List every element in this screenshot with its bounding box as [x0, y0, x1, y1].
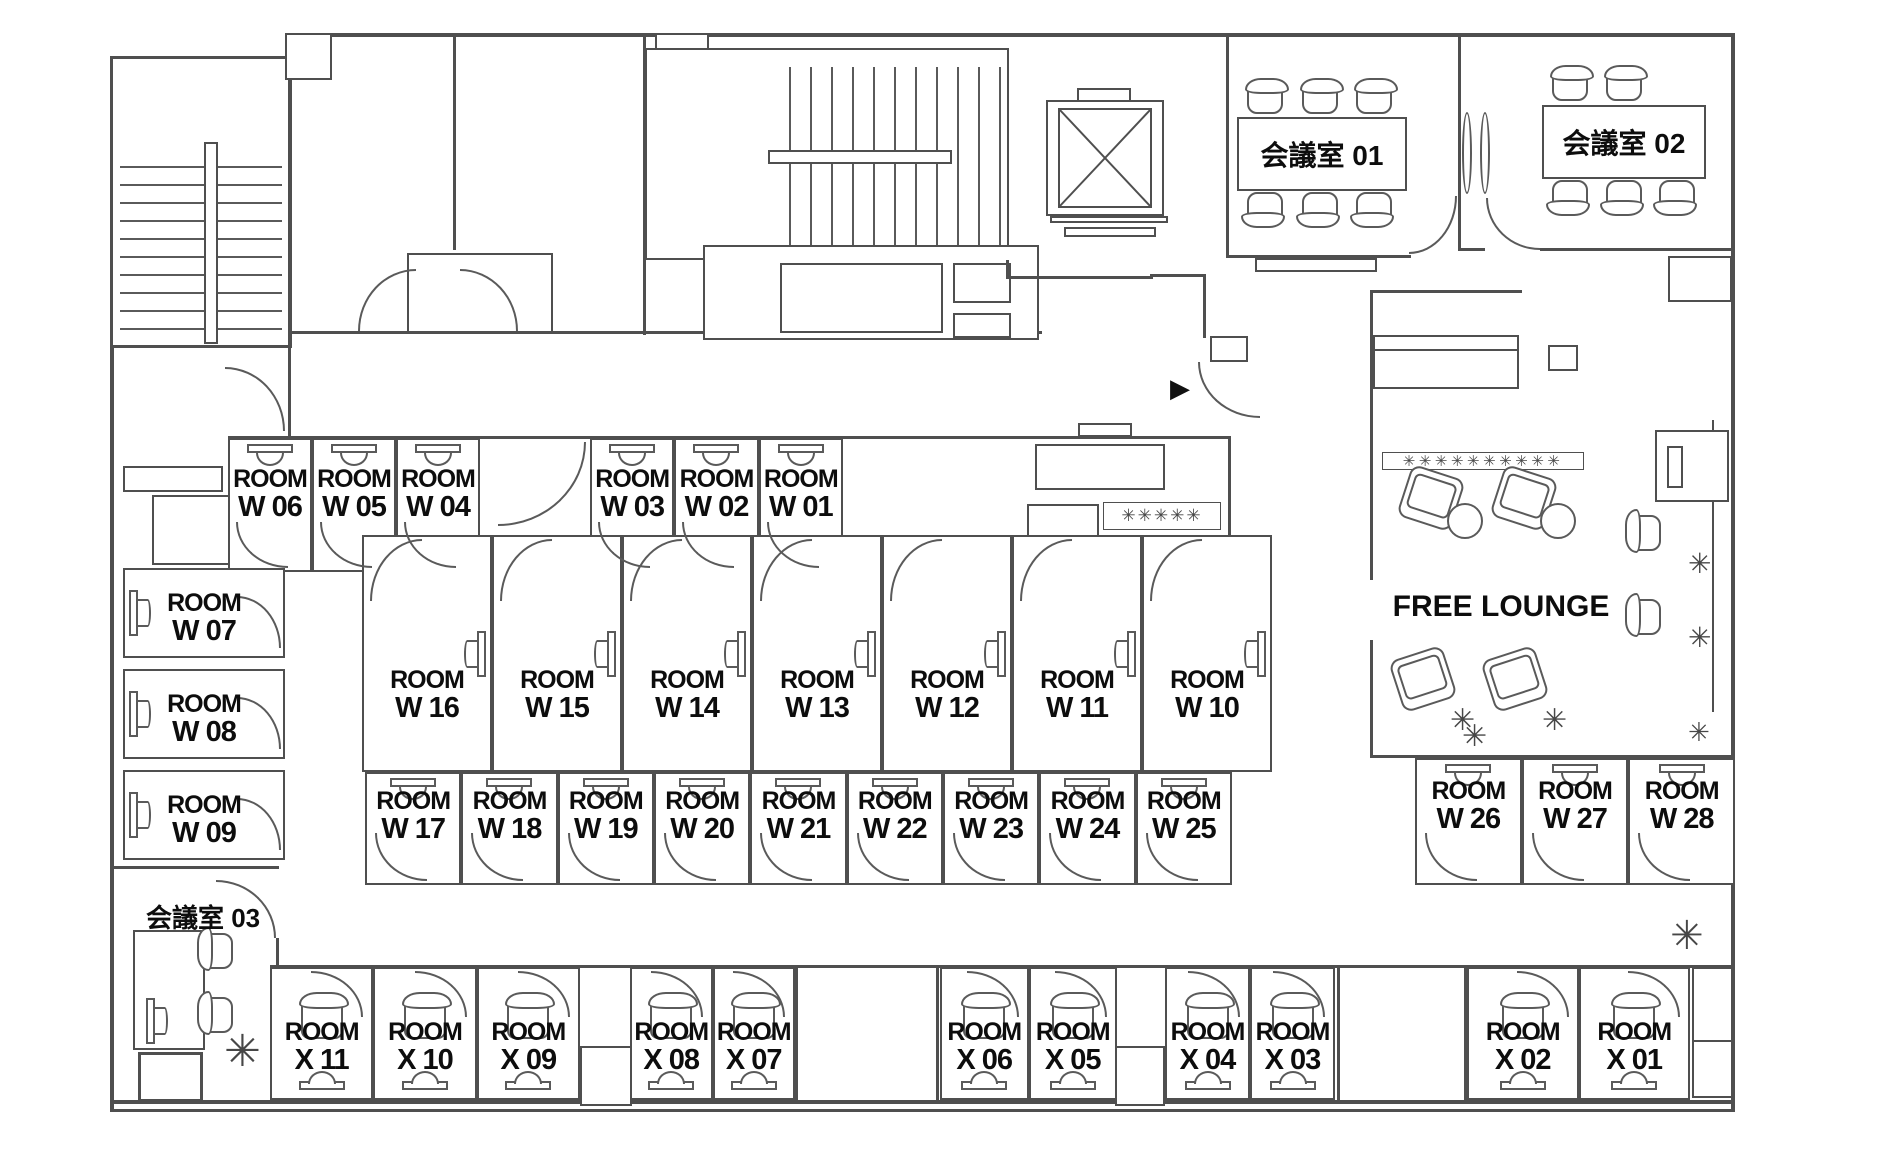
door-arc-icon [1638, 833, 1690, 881]
wall-segment [1150, 274, 1206, 277]
room-label-prefix: ROOM [364, 667, 490, 693]
room-label-prefix: ROOM [1252, 1019, 1333, 1045]
door-arc-icon [1150, 539, 1202, 601]
wall-segment [1370, 290, 1373, 580]
column [285, 33, 332, 80]
whiteboard-icon [1462, 112, 1472, 194]
room-label-prefix: ROOM [1581, 1019, 1689, 1045]
room-label-number: W 25 [1138, 814, 1230, 844]
room-cell: ROOMW 26 [1415, 758, 1522, 885]
door-arc-icon [1055, 971, 1107, 1017]
room-cell: ROOMW 20 [654, 772, 750, 885]
door-arc-icon [1517, 971, 1569, 1017]
desk-icon [1270, 1081, 1316, 1090]
room-label-number: X 05 [1031, 1045, 1116, 1075]
wall-segment [110, 1100, 1735, 1104]
room-label-prefix: ROOM [314, 466, 394, 492]
plant-icon: ✳ [1462, 722, 1487, 752]
room-column-left: ROOMW 07 ROOMW 08 ROOMW 09 [123, 568, 285, 860]
room-label-number: W 27 [1524, 804, 1627, 834]
wall-segment [288, 56, 291, 438]
room-label-number: W 24 [1041, 814, 1133, 844]
room-label-number: W 14 [624, 693, 750, 723]
room-label-prefix: ROOM [754, 667, 880, 693]
room-label-prefix: ROOM [367, 788, 459, 814]
door-arc-icon [651, 971, 703, 1017]
plant-icon: ✳ [1688, 720, 1710, 746]
armchair-icon [1480, 645, 1550, 714]
wall-segment [285, 33, 1735, 37]
room-label-number: X 06 [942, 1045, 1027, 1075]
desk-icon [1500, 1081, 1546, 1090]
room-label-number: W 03 [592, 492, 672, 522]
chair-icon [1356, 84, 1392, 114]
chair-icon [1302, 192, 1338, 222]
door-arc-icon [225, 367, 285, 431]
desk-icon [1161, 778, 1207, 787]
cabinet-box [138, 1052, 203, 1102]
wall-segment [1461, 248, 1485, 251]
wall-segment [1226, 33, 1229, 257]
room-cell: ROOMW 06 [228, 438, 312, 572]
room-label-number: X 02 [1469, 1045, 1577, 1075]
room-group-bottom-c: ROOMX 06 ROOMX 05 [940, 967, 1117, 1100]
desk-icon [486, 778, 532, 787]
door-arc-icon [967, 971, 1019, 1017]
desk-icon [693, 444, 739, 453]
room-group-bottom-b: ROOMX 08 ROOMX 07 [630, 967, 795, 1100]
chair-icon [1552, 71, 1588, 101]
door-arc-icon [358, 269, 416, 331]
door-arc-icon [733, 971, 785, 1017]
room-label-number: W 08 [125, 717, 283, 747]
door-arc-icon [760, 539, 812, 601]
desk-icon [775, 778, 821, 787]
door-arc-icon [311, 971, 363, 1017]
desk-icon [402, 1081, 448, 1090]
round-table-icon [1447, 503, 1483, 539]
room-label-prefix: ROOM [752, 788, 844, 814]
room-cell: ROOMX 01 [1579, 967, 1691, 1100]
room-label-prefix: ROOM [494, 667, 620, 693]
room-cell: ROOMW 25 [1136, 772, 1232, 885]
room-cell: ROOMX 07 [713, 967, 796, 1100]
room-cell: ROOMX 03 [1250, 967, 1335, 1100]
room-cell: ROOMW 10 [1142, 535, 1272, 772]
armchair-icon [1388, 645, 1458, 714]
door-arc-icon [890, 539, 942, 601]
desk-icon [505, 1081, 551, 1090]
room-label-number: W 10 [1144, 693, 1270, 723]
room-label-number: W 16 [364, 693, 490, 723]
plant-icon: ✳ [224, 1030, 261, 1074]
room-label-number: X 08 [632, 1045, 711, 1075]
room-row-top-a: ROOMW 06 ROOMW 05 ROOMW 04 [228, 438, 480, 572]
wall-segment [1372, 290, 1522, 293]
room-label-prefix: ROOM [849, 788, 941, 814]
desk-icon [872, 778, 918, 787]
room-cell: ROOMW 18 [461, 772, 557, 885]
wall-segment [795, 967, 798, 1100]
room-label-prefix: ROOM [1630, 778, 1733, 804]
room-cell: ROOMW 27 [1522, 758, 1629, 885]
room-label-prefix: ROOM [1031, 1019, 1116, 1045]
desk-icon [961, 1081, 1007, 1090]
room-label-prefix: ROOM [632, 1019, 711, 1045]
meeting-room-02-table: 会議室 02 [1542, 105, 1706, 179]
door-arc-icon [500, 539, 552, 601]
desk-icon [146, 998, 155, 1044]
room-label-prefix: ROOM [942, 1019, 1027, 1045]
room-cell: ROOMX 11 [270, 967, 373, 1100]
lounge-label: FREE LOUNGE [1370, 590, 1632, 624]
door-arc-icon [1486, 198, 1540, 250]
room-label-prefix: ROOM [230, 466, 310, 492]
desk-icon [299, 1081, 345, 1090]
door-arc-icon [1628, 971, 1680, 1017]
room-label-number: W 06 [230, 492, 310, 522]
desk-icon [609, 444, 655, 453]
room-row-right: ROOMW 26 ROOMW 27 ROOMW 28 [1415, 758, 1735, 885]
room-cell: ROOMW 16 [362, 535, 492, 772]
room-label-number: W 01 [761, 492, 841, 522]
room-label-number: X 11 [272, 1045, 371, 1075]
door-arc-icon [1198, 362, 1260, 418]
room-cell: ROOMW 19 [558, 772, 654, 885]
room-cell: ROOMW 23 [943, 772, 1039, 885]
chair-icon [1356, 192, 1392, 222]
room-label-prefix: ROOM [125, 590, 283, 616]
room-cell: ROOMX 08 [630, 967, 713, 1100]
desk-icon [247, 444, 293, 453]
room-label-number: W 23 [945, 814, 1037, 844]
room-label-number: X 09 [479, 1045, 578, 1075]
plant-icon: ✳ [1542, 706, 1567, 736]
room-label-number: W 07 [125, 616, 283, 646]
room-label-number: W 02 [676, 492, 756, 522]
lounge-desk-inner [1667, 446, 1683, 488]
stair-landing [768, 150, 952, 164]
closet-box [1668, 256, 1732, 302]
wall-segment [936, 967, 939, 1100]
room-group-bottom-a: ROOMX 11 ROOMX 10 ROOMX 09 [270, 967, 580, 1100]
chair-icon [1659, 180, 1695, 210]
closet-box [1692, 967, 1733, 1098]
lounge-counter [1373, 335, 1519, 389]
desk-icon [1185, 1081, 1231, 1090]
room-label-number: W 22 [849, 814, 941, 844]
counter [1035, 444, 1165, 490]
room-label-prefix: ROOM [676, 466, 756, 492]
room-label-number: X 10 [375, 1045, 474, 1075]
room-label-number: W 21 [752, 814, 844, 844]
desk-icon [583, 778, 629, 787]
desk-icon [390, 778, 436, 787]
room-row-middle-2: ROOMW 17 ROOMW 18 ROOMW 19 ROOMW 20 [365, 772, 1232, 885]
room-label-prefix: ROOM [1417, 778, 1520, 804]
room-cell: ROOMW 24 [1039, 772, 1135, 885]
room-cell: ROOMW 22 [847, 772, 943, 885]
wall-segment [1370, 640, 1373, 757]
wall-segment [1203, 274, 1206, 338]
plant-row-icon: ✳✳✳✳✳ [1103, 502, 1221, 530]
door-arc-icon [1188, 971, 1240, 1017]
door-arc-icon [236, 522, 288, 568]
desk-icon [415, 444, 461, 453]
room-label-prefix: ROOM [656, 788, 748, 814]
room-cell: ROOMW 28 [1628, 758, 1735, 885]
counter [1548, 345, 1578, 371]
room-cell: ROOMW 07 [123, 568, 285, 658]
desk-icon [1611, 1081, 1657, 1090]
entrance-door-frame [1210, 336, 1248, 362]
desk-icon [778, 444, 824, 453]
door-arc-icon [370, 539, 422, 601]
elevator-door [1064, 227, 1156, 237]
wall-segment [453, 33, 456, 250]
room-cell: ROOMW 17 [365, 772, 461, 885]
desk-icon [679, 778, 725, 787]
room-label-prefix: ROOM [945, 788, 1037, 814]
desk-icon [1050, 1081, 1096, 1090]
room-label-prefix: ROOM [624, 667, 750, 693]
room-label-prefix: ROOM [125, 691, 283, 717]
desk-icon [331, 444, 377, 453]
room-group-bottom-d: ROOMX 04 ROOMX 03 [1165, 967, 1335, 1100]
chair-icon [1247, 84, 1283, 114]
room-label-prefix: ROOM [125, 792, 283, 818]
room-label-prefix: ROOM [1167, 1019, 1248, 1045]
room-label-prefix: ROOM [1469, 1019, 1577, 1045]
door-arc-icon [1425, 833, 1477, 881]
door-arc-icon [1532, 833, 1584, 881]
room-cell: ROOMX 05 [1029, 967, 1118, 1100]
room-label-prefix: ROOM [398, 466, 478, 492]
room-cell: ROOMW 21 [750, 772, 846, 885]
entrance-arrow-icon: ▶ [1170, 376, 1190, 402]
room-label-prefix: ROOM [1041, 788, 1133, 814]
room-label-number: X 01 [1581, 1045, 1689, 1075]
room-label-prefix: ROOM [1144, 667, 1270, 693]
room-label-number: W 20 [656, 814, 748, 844]
counter [1255, 258, 1377, 272]
wall-segment [110, 1109, 1735, 1112]
chair-icon [1606, 180, 1642, 210]
chair-icon [1631, 599, 1661, 635]
wall-segment [1731, 33, 1735, 1112]
room-cell: ROOMW 11 [1012, 535, 1142, 772]
room-label-number: W 11 [1014, 693, 1140, 723]
room-label-number: W 09 [125, 818, 283, 848]
room-label-prefix: ROOM [375, 1019, 474, 1045]
wall-segment [1006, 276, 1153, 279]
room-label-prefix: ROOM [592, 466, 672, 492]
room-cell: ROOMX 09 [477, 967, 580, 1100]
room-label-prefix: ROOM [761, 466, 841, 492]
room-label-prefix: ROOM [1014, 667, 1140, 693]
room-cell: ROOMW 13 [752, 535, 882, 772]
room-cell: ROOMX 04 [1165, 967, 1250, 1100]
column [1115, 1046, 1165, 1106]
room-label-number: W 19 [560, 814, 652, 844]
room-label-number: X 04 [1167, 1045, 1248, 1075]
door-arc-icon [415, 971, 467, 1017]
room-cell: ROOMW 08 [123, 669, 285, 759]
room-label-number: W 17 [367, 814, 459, 844]
plant-icon: ✳ [1670, 916, 1704, 956]
wc-fixture [780, 263, 943, 333]
room-cell: ROOMX 02 [1467, 967, 1579, 1100]
storage-box [123, 466, 223, 492]
meeting-room-03-label: 会議室 03 [146, 898, 296, 935]
door-arc-icon [1273, 971, 1325, 1017]
wall-segment [113, 866, 279, 869]
room-label-number: W 15 [494, 693, 620, 723]
chair-icon [1631, 515, 1661, 551]
room-label-prefix: ROOM [560, 788, 652, 814]
room-label-number: X 07 [715, 1045, 794, 1075]
room-row-middle-1: ROOMW 16 ROOMW 15 ROOMW 14 ROOMW 13 [362, 535, 1272, 772]
meeting-room-03-table [133, 930, 205, 1050]
room-label-prefix: ROOM [1138, 788, 1230, 814]
room-label-number: W 05 [314, 492, 394, 522]
door-arc-icon [320, 522, 372, 568]
room-cell: ROOMW 09 [123, 770, 285, 860]
room-label-prefix: ROOM [463, 788, 555, 814]
room-label-number: W 18 [463, 814, 555, 844]
room-label-prefix: ROOM [272, 1019, 371, 1045]
wall-segment [1458, 33, 1461, 251]
room-cell: ROOMW 15 [492, 535, 622, 772]
wc-fixture [953, 263, 1011, 303]
room-cell: ROOMW 12 [882, 535, 1012, 772]
room-cell: ROOMX 06 [940, 967, 1029, 1100]
door-arc-icon [1409, 196, 1457, 254]
elevator-icon [1046, 100, 1164, 216]
wall-segment [1375, 349, 1517, 351]
desk-icon [1445, 764, 1491, 773]
desk-icon [1659, 764, 1705, 773]
room-label-number: W 26 [1417, 804, 1520, 834]
whiteboard-icon [1480, 112, 1490, 194]
desk-icon [1064, 778, 1110, 787]
elevator-door [1050, 216, 1168, 223]
meeting-room-01-table: 会議室 01 [1237, 117, 1407, 191]
room-label-number: W 13 [754, 693, 880, 723]
desk-icon [731, 1081, 777, 1090]
round-table-icon [1540, 503, 1576, 539]
wall-segment [1692, 1040, 1733, 1042]
stair-rail [204, 142, 218, 344]
stairs-icon [120, 150, 282, 340]
desk-icon [1552, 764, 1598, 773]
plant-icon: ✳ [1688, 624, 1711, 652]
door-arc-icon [498, 442, 586, 526]
chair-icon [1247, 192, 1283, 222]
room-label-prefix: ROOM [1524, 778, 1627, 804]
room-label-prefix: ROOM [884, 667, 1010, 693]
room-group-bottom-e: ROOMX 02 ROOMX 01 [1467, 967, 1690, 1100]
room-cell: ROOMW 14 [622, 535, 752, 772]
chair-icon [1302, 84, 1338, 114]
room-label-prefix: ROOM [479, 1019, 578, 1045]
room-cell: ROOMX 10 [373, 967, 476, 1100]
chair-icon [203, 933, 233, 969]
counter [1078, 423, 1132, 437]
chair-icon [1552, 180, 1588, 210]
room-label-prefix: ROOM [715, 1019, 794, 1045]
wc-fixture [953, 313, 1011, 338]
door-arc-icon [1020, 539, 1072, 601]
wall-segment [1540, 248, 1735, 251]
door-arc-icon [518, 971, 570, 1017]
desk-icon [648, 1081, 694, 1090]
room-label-number: X 03 [1252, 1045, 1333, 1075]
desk-icon [968, 778, 1014, 787]
room-label-number: W 04 [398, 492, 478, 522]
floor-plan-canvas: ▶ 会議室 01 会議室 02 ✳✳✳✳✳ ✳✳✳✳✳✳✳✳✳✳ ✳ ✳ FRE… [0, 0, 1890, 1159]
room-label-number: W 28 [1630, 804, 1733, 834]
room-label-number: W 12 [884, 693, 1010, 723]
wall-segment [1337, 967, 1340, 1100]
chair-icon [1606, 71, 1642, 101]
plant-icon: ✳ [1688, 550, 1711, 578]
column [580, 1046, 632, 1106]
